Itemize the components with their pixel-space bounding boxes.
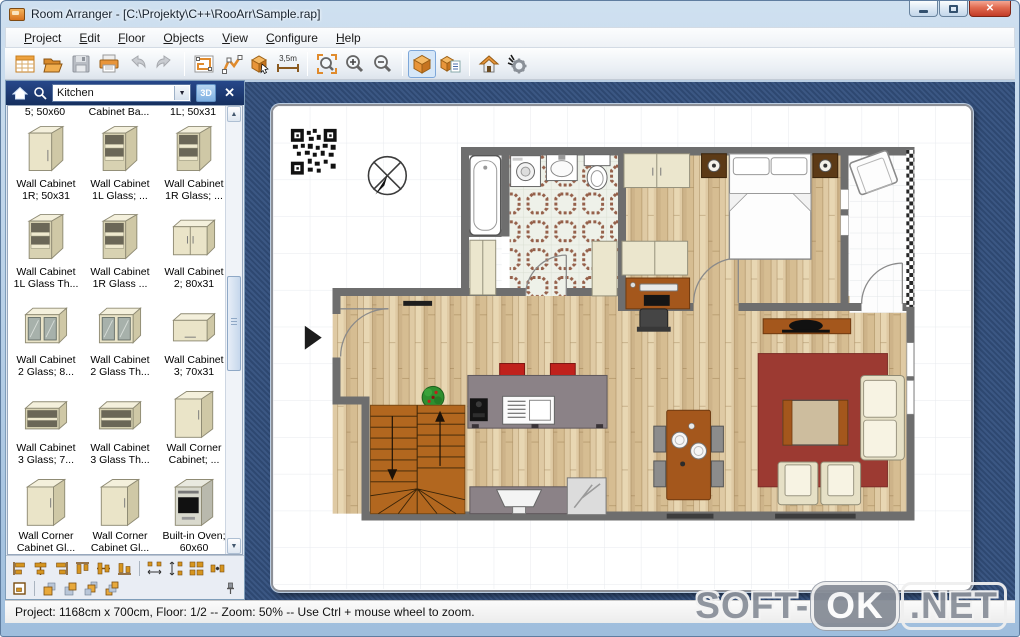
toolbar-separator [307,52,308,76]
library-item[interactable]: Wall Cabinet1R Glass ... [83,208,157,296]
preview-3d-button[interactable]: 3D [196,84,216,102]
dining-chair [654,426,666,452]
undo-button[interactable] [123,50,151,78]
library-panel: Kitchen ▼ 3D ✕ 5; 50x60 Cabinet Ba... 1L… [5,80,245,600]
space-equal-v-button[interactable] [166,559,185,577]
library-item[interactable]: Wall CornerCabinet; ... [157,384,231,472]
send-backward-button[interactable] [103,579,122,597]
object-properties-icon [438,52,462,76]
search-icon[interactable] [33,86,47,100]
drawing-canvas[interactable] [245,80,1015,600]
menu-configure[interactable]: Configure [258,29,326,47]
cabinet-thumbnail-icon [166,296,222,354]
cabinet-thumbnail-icon [18,384,74,442]
room-walls-button[interactable] [10,579,29,597]
minimize-button[interactable] [909,1,938,17]
edit-walls-icon [192,52,216,76]
window-title: Room Arranger - [C:\Projekty\C++\RooArr\… [31,7,320,21]
watermark-prefix: SOFT- [695,585,809,627]
library-item[interactable]: Wall Cabinet3 Glass; 7... [9,384,83,472]
bathroom-cabinet[interactable] [592,241,617,296]
washing-machine[interactable] [511,156,541,187]
armchair[interactable] [821,462,861,505]
toolbar-separator [402,52,403,76]
cabinet-thumbnail-icon [166,120,222,178]
menu-help[interactable]: Help [328,29,369,47]
bring-forward-button[interactable] [82,579,101,597]
library-header: Kitchen ▼ 3D ✕ [6,81,244,105]
go-home-button[interactable] [475,50,503,78]
maximize-button[interactable] [939,1,968,17]
dishwasher[interactable] [567,478,606,515]
partial-label[interactable]: 1L; 50x31 [156,106,230,120]
library-item[interactable]: Wall Cabinet2 Glass; 8... [9,296,83,384]
scroll-down-icon[interactable]: ▼ [227,538,241,554]
bedroom-balcony-window[interactable] [841,190,849,210]
library-item[interactable]: Wall CornerCabinet Gl... [83,472,157,555]
toolbar-separator [184,52,185,76]
desk-chair[interactable] [637,309,671,332]
floorplan [273,106,971,589]
menu-edit[interactable]: Edit [71,29,108,47]
living-window[interactable] [907,343,914,377]
floorplan-page[interactable] [271,104,973,592]
measure-button[interactable]: 3,5m [274,50,302,78]
library-item[interactable]: Wall Cabinet1R Glass; ... [157,120,231,208]
cabinet-thumbnail-icon [92,296,148,354]
dropdown-arrow-icon[interactable]: ▼ [174,86,189,100]
bar-stool [500,364,525,377]
status-text: Project: 1168cm x 700cm, Floor: 1/2 -- Z… [15,605,475,619]
menu-view[interactable]: View [214,29,256,47]
balcony-window-wall[interactable] [906,150,914,307]
redo-icon [153,52,177,76]
bathroom-sink[interactable] [546,155,577,181]
toolbar-separator [469,52,470,76]
bedroom-balcony-window[interactable] [841,215,849,235]
coffee-machine [470,398,488,421]
panel-close-icon[interactable]: ✕ [221,85,238,101]
close-icon: ✕ [986,3,994,14]
view-3d-icon [410,52,434,76]
new-project-button[interactable] [11,50,39,78]
desk[interactable] [626,278,690,309]
new-project-icon [13,52,37,76]
nightstand-right[interactable] [813,154,838,178]
redo-button[interactable] [151,50,179,78]
arrange-toolbar [6,555,244,599]
stairs[interactable] [370,405,464,513]
cabinet-thumbnail-icon [18,120,74,178]
insert-object-icon [248,52,272,76]
zoom-out-icon [371,52,395,76]
measure-icon: 3,5m [275,52,301,76]
preferences-button[interactable] [503,50,531,78]
cabinet-thumbnail-icon [18,208,74,266]
watermark-badge: OK [811,582,899,630]
app-icon [9,8,25,21]
same-size-button[interactable] [187,559,206,577]
library-item[interactable]: Wall Cabinet3 Glass Th... [83,384,157,472]
go-home-icon [477,52,501,76]
main-toolbar: 3,5m [5,48,1015,80]
library-list: 5; 50x60 Cabinet Ba... 1L; 50x31 Wall Ca… [7,105,243,555]
bring-to-front-button[interactable] [40,579,59,597]
pin-panel-button[interactable] [221,579,240,597]
cabinet-thumbnail-icon [18,472,74,530]
snap-objects-button[interactable] [208,559,227,577]
send-to-back-button[interactable] [61,579,80,597]
bedroom-cabinet[interactable] [622,241,688,275]
edit-walls-button[interactable] [190,50,218,78]
dining-chair [654,461,666,487]
library-item[interactable]: Wall Cabinet1L Glass Th... [9,208,83,296]
align-bottom-button[interactable] [115,559,134,577]
cabinet-thumbnail-icon [166,208,222,266]
library-item[interactable]: Wall CornerCabinet Gl... [9,472,83,555]
category-value: Kitchen [57,87,94,99]
cabinet-thumbnail-icon [18,296,74,354]
bottom-window[interactable] [667,514,714,519]
cabinet-thumbnail-icon [92,208,148,266]
living-window[interactable] [907,380,914,414]
draw-polyline-icon [220,52,244,76]
save-icon [69,52,93,76]
menu-project[interactable]: Project [16,29,69,47]
menu-objects[interactable]: Objects [155,29,212,47]
menu-bar: Project Edit Floor Objects View Configur… [5,27,1015,48]
library-item[interactable]: Built-in Oven;60x60 [157,472,231,555]
cabinet-thumbnail-icon [92,384,148,442]
menu-floor[interactable]: Floor [110,29,153,47]
zoom-to-fit-button[interactable] [313,50,341,78]
cabinet-thumbnail-icon [92,472,148,530]
armchair[interactable] [778,462,818,505]
dining-chair [711,461,723,487]
tv-stand[interactable] [763,319,850,334]
print-button[interactable] [95,50,123,78]
maximize-icon [949,5,958,13]
cabinet-thumbnail-icon [92,120,148,178]
wardrobe[interactable] [624,154,690,188]
qr-code[interactable] [291,129,337,175]
zoom-in-icon [343,52,367,76]
bar-stool [550,364,575,377]
object-properties-button[interactable] [436,50,464,78]
bottom-window[interactable] [775,514,856,519]
zoom-out-button[interactable] [369,50,397,78]
close-button[interactable]: ✕ [969,1,1011,17]
insert-object-button[interactable] [246,50,274,78]
scroll-up-icon[interactable]: ▲ [227,106,241,122]
align-left-button[interactable] [10,559,29,577]
partial-label[interactable]: 5; 50x60 [8,106,82,120]
library-scrollbar[interactable]: ▲ ▼ [225,106,242,554]
coffee-table[interactable] [783,400,848,445]
bathtub[interactable] [470,156,501,236]
space-equal-h-button[interactable] [145,559,164,577]
undo-icon [125,52,149,76]
double-bed[interactable] [729,154,811,259]
library-item[interactable]: Wall Cabinet1L Glass; ... [83,120,157,208]
partial-label[interactable]: Cabinet Ba... [82,106,156,120]
sofa[interactable] [861,375,905,460]
library-item[interactable]: Wall Cabinet1R; 50x31 [9,120,83,208]
toolbar-separator [34,581,35,596]
app-window: Room Arranger - [C:\Projekty\C++\RooArr\… [0,0,1020,637]
title-bar[interactable]: Room Arranger - [C:\Projekty\C++\RooArr\… [1,1,1019,27]
align-center-v-button[interactable] [94,559,113,577]
cabinet-thumbnail-icon [166,384,222,442]
home-icon[interactable] [12,86,28,100]
library-partial-row: 5; 50x60 Cabinet Ba... 1L; 50x31 [8,106,242,120]
library-item[interactable]: Wall Cabinet2; 80x31 [157,208,231,296]
open-button[interactable] [39,50,67,78]
zoom-to-fit-icon [315,52,339,76]
align-center-h-button[interactable] [31,559,50,577]
library-item[interactable]: Wall Cabinet3; 70x31 [157,296,231,384]
preferences-icon [505,52,529,76]
watermark-suffix: .NET [901,582,1007,630]
nightstand-left[interactable] [702,154,727,178]
align-top-button[interactable] [73,559,92,577]
view-3d-button[interactable] [408,50,436,78]
kitchen-counter[interactable] [470,487,574,514]
align-right-button[interactable] [52,559,71,577]
watermark: SOFT- OK .NET [695,582,1007,630]
save-button[interactable] [67,50,95,78]
minimize-icon [919,10,928,13]
print-icon [97,52,121,76]
zoom-in-button[interactable] [341,50,369,78]
open-icon [41,52,65,76]
scrollbar-thumb[interactable] [227,276,241,371]
library-item[interactable]: Wall Cabinet2 Glass Th... [83,296,157,384]
cabinet-thumbnail-icon [166,472,222,530]
dining-chair [711,426,723,452]
radiator[interactable] [403,301,432,306]
category-dropdown[interactable]: Kitchen ▼ [52,84,191,102]
draw-polyline-button[interactable] [218,50,246,78]
svg-text:3,5m: 3,5m [279,54,297,63]
toolbar-separator [139,561,140,576]
